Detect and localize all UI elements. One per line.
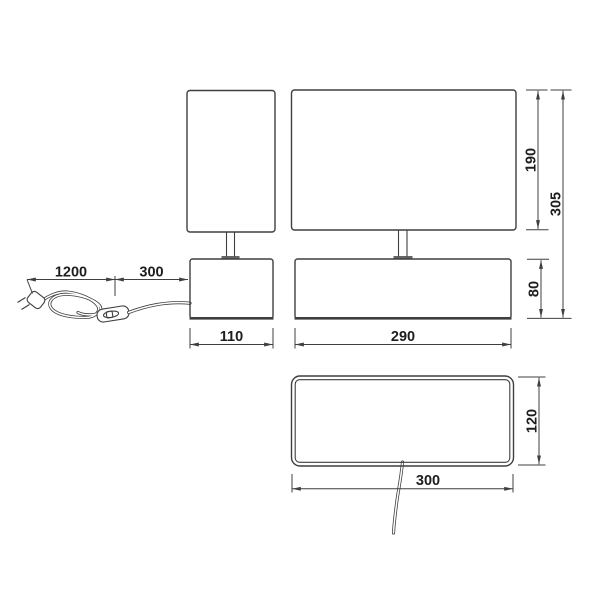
dim-small-base-width-label: 110 [220, 329, 243, 345]
dim-top-width-label: 300 [416, 473, 440, 489]
dimension-annotations: 1200 300 110 290 190 8 [27, 90, 572, 493]
dim-total-height-label: 305 [549, 192, 565, 216]
dim-shade-height-label: 190 [524, 148, 540, 172]
lamp-dimension-drawing: 1200 300 110 290 190 8 [0, 0, 600, 600]
dim-cord-length-group: 1200 300 [27, 265, 188, 297]
lamp-top-view [292, 376, 514, 533]
dim-top-depth-group: 120 [518, 377, 546, 465]
dim-top-width-group: 300 [292, 473, 513, 493]
dim-base-height-label: 80 [527, 281, 543, 297]
plug-body [26, 290, 47, 310]
dim-top-depth-label: 120 [525, 409, 541, 433]
top-view-outer-outline [292, 376, 514, 466]
large-lamp-front-view [292, 90, 517, 319]
technical-drawing-page: 1200 300 110 290 190 8 [0, 0, 600, 600]
cord-dim-leader-line [27, 280, 33, 294]
large-lamp-shade [292, 90, 517, 230]
small-lamp-front-view [187, 91, 275, 319]
dim-cord-to-lamp-label: 300 [139, 265, 163, 281]
small-lamp-base [190, 259, 273, 319]
dim-small-base-width-group: 110 [190, 328, 273, 349]
dim-large-base-width-label: 290 [391, 329, 415, 345]
top-view-cable-core [394, 462, 403, 533]
coiled-cable [43, 292, 101, 318]
large-lamp-base [295, 259, 511, 319]
power-cord-assembly [18, 290, 191, 323]
plug-pin-top [18, 298, 26, 303]
small-lamp-stem [222, 232, 240, 259]
dim-large-base-width-group: 290 [295, 328, 511, 349]
plug-pin-bottom [22, 305, 30, 310]
dim-heights-group: 190 80 305 [524, 90, 572, 318]
small-lamp-shade [187, 91, 275, 233]
dim-cord-length-label: 1200 [55, 265, 87, 281]
top-view-inner-outline [295, 380, 510, 463]
large-lamp-stem [394, 230, 413, 259]
